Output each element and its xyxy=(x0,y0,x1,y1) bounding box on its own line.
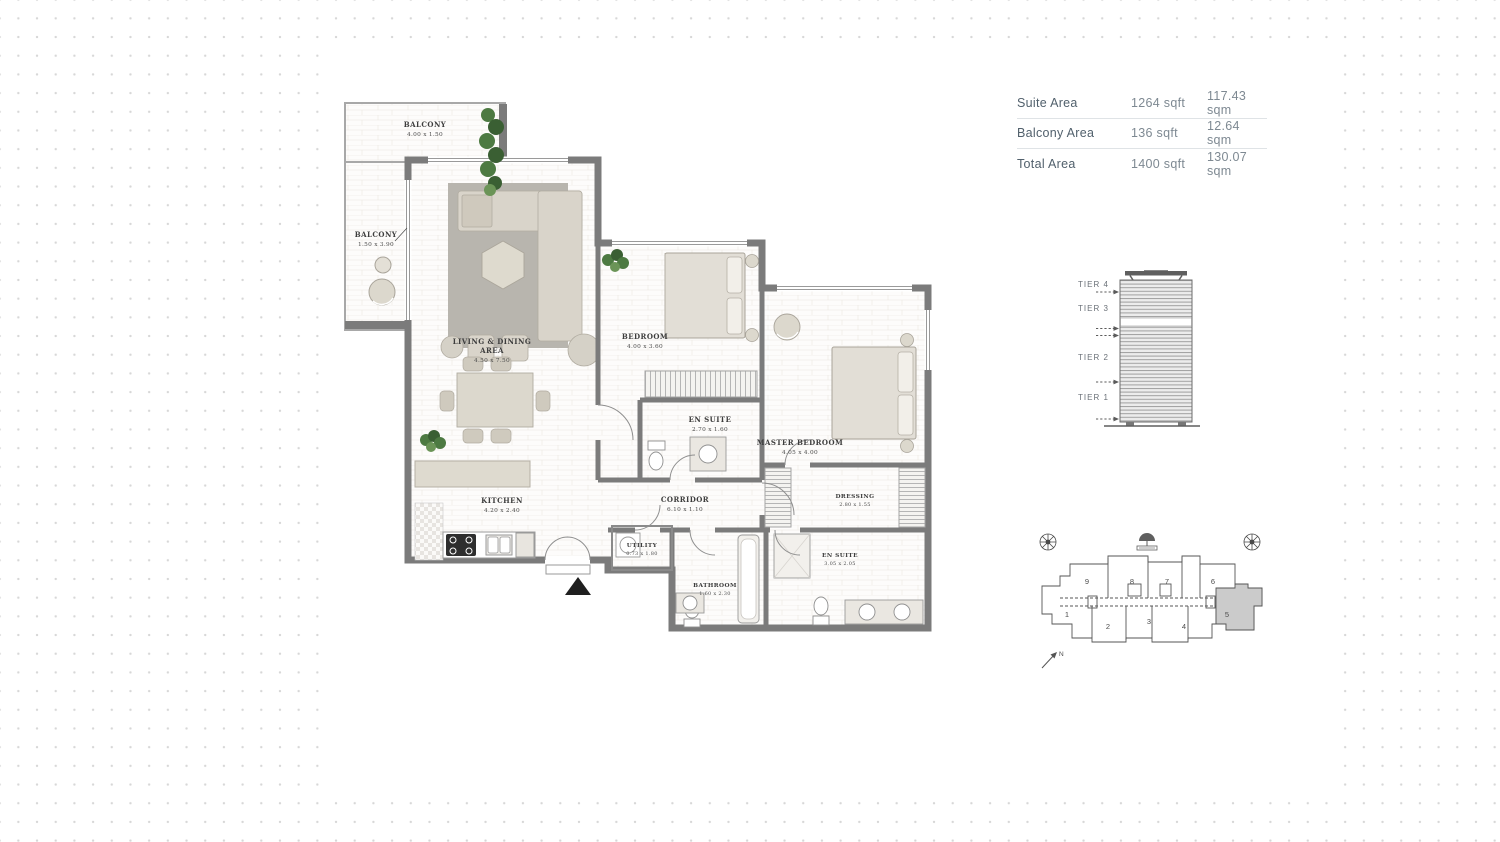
area-sqm: 12.64 sqm xyxy=(1207,119,1267,147)
area-table: Suite Area 1264 sqft 117.43 sqm Balcony … xyxy=(1017,88,1267,179)
area-sqft: 136 sqft xyxy=(1131,126,1207,140)
building-elevation xyxy=(1104,271,1200,426)
floor-plan: BALCONY 4.00 x 1.50 BALCONY 1.50 x 3.90 … xyxy=(340,95,940,640)
room-label: KITCHEN xyxy=(481,496,523,505)
room-label: UTILITY xyxy=(627,543,658,549)
room-label: EN SUITE xyxy=(689,415,732,424)
unit-number: 6 xyxy=(1211,577,1215,586)
unit-number: 8 xyxy=(1130,577,1134,586)
pointer-arrowheads xyxy=(1114,290,1120,422)
room-label: BALCONY xyxy=(355,230,398,239)
north-label: N xyxy=(1059,651,1064,658)
fridge-icon xyxy=(516,533,534,557)
room-dims: 0.73 x 1.80 xyxy=(626,551,658,557)
area-sqft: 1264 sqft xyxy=(1131,96,1207,110)
room-dims: 4.05 x 4.00 xyxy=(782,450,818,456)
room-dims: 1.60 x 2.30 xyxy=(699,591,731,597)
room-label: EN SUITE xyxy=(822,553,858,559)
wall-segment xyxy=(345,321,409,329)
north-arrow-icon: N xyxy=(1042,651,1064,668)
floor-plan-page: BALCONY 4.00 x 1.50 BALCONY 1.50 x 3.90 … xyxy=(0,0,1500,842)
unit-number: 9 xyxy=(1085,577,1089,586)
entrance-marker-icon xyxy=(565,577,591,595)
dining-table xyxy=(457,373,533,427)
tier-diagram: TIER 4 TIER 3 TIER 2 TIER 1 xyxy=(1072,262,1212,437)
chair xyxy=(774,314,800,340)
room-dims: 3.05 x 2.05 xyxy=(824,561,856,567)
room-label: MASTER BEDROOM xyxy=(757,438,843,447)
unit-number: 1 xyxy=(1065,610,1069,619)
room-dims: 2.80 x 1.55 xyxy=(839,502,871,508)
area-table-row: Suite Area 1264 sqft 117.43 sqm xyxy=(1017,88,1267,119)
double-vanity xyxy=(845,600,923,624)
room-label: LIVING & DINING xyxy=(453,337,532,346)
tier-label: TIER 1 xyxy=(1078,393,1109,402)
toilet-icon xyxy=(814,597,828,615)
room-dims: 4.00 x 3.60 xyxy=(627,344,663,350)
site-plan: 1 2 3 4 5 6 7 8 9 N xyxy=(1030,526,1275,681)
room-dims: 4.00 x 1.50 xyxy=(407,132,443,138)
area-sqm: 130.07 sqm xyxy=(1207,150,1267,178)
tier-label: TIER 3 xyxy=(1078,304,1109,313)
unit-number: 4 xyxy=(1182,622,1186,631)
tier-label: TIER 2 xyxy=(1078,353,1109,362)
toilet-icon xyxy=(649,452,663,470)
unit-number: 7 xyxy=(1165,577,1169,586)
unit-5-highlight xyxy=(1216,584,1262,630)
room-label: BATHROOM xyxy=(693,583,737,589)
unit-number: 5 xyxy=(1225,610,1229,619)
room-label: DRESSING xyxy=(835,494,874,500)
area-table-row: Total Area 1400 sqft 130.07 sqm xyxy=(1017,149,1267,179)
room-dims: 6.10 x 1.10 xyxy=(667,507,703,513)
tier-label: TIER 4 xyxy=(1078,280,1109,289)
room-label: CORRIDOR xyxy=(661,495,709,504)
area-sqft: 1400 sqft xyxy=(1131,157,1207,171)
unit-number: 3 xyxy=(1147,617,1151,626)
room-dims: 4.20 x 2.40 xyxy=(484,508,520,514)
tree-icon xyxy=(1244,534,1260,550)
area-label: Total Area xyxy=(1017,157,1131,171)
area-label: Balcony Area xyxy=(1017,126,1131,140)
room-label: BEDROOM xyxy=(622,332,668,341)
balcony-table xyxy=(375,257,391,273)
pool-icon xyxy=(1137,533,1157,550)
room-label: BALCONY xyxy=(404,120,447,129)
room-dims: 1.50 x 3.90 xyxy=(358,242,394,248)
tree-icon xyxy=(1040,534,1056,550)
area-label: Suite Area xyxy=(1017,96,1131,110)
wardrobe xyxy=(645,371,757,397)
unit-number: 2 xyxy=(1106,622,1110,631)
area-sqm: 117.43 sqm xyxy=(1207,89,1267,117)
room-dims: 4.50 x 7.50 xyxy=(474,358,510,364)
room-dims: 2.70 x 1.60 xyxy=(692,427,728,433)
room-label: AREA xyxy=(479,346,504,355)
area-table-row: Balcony Area 136 sqft 12.64 sqm xyxy=(1017,119,1267,150)
